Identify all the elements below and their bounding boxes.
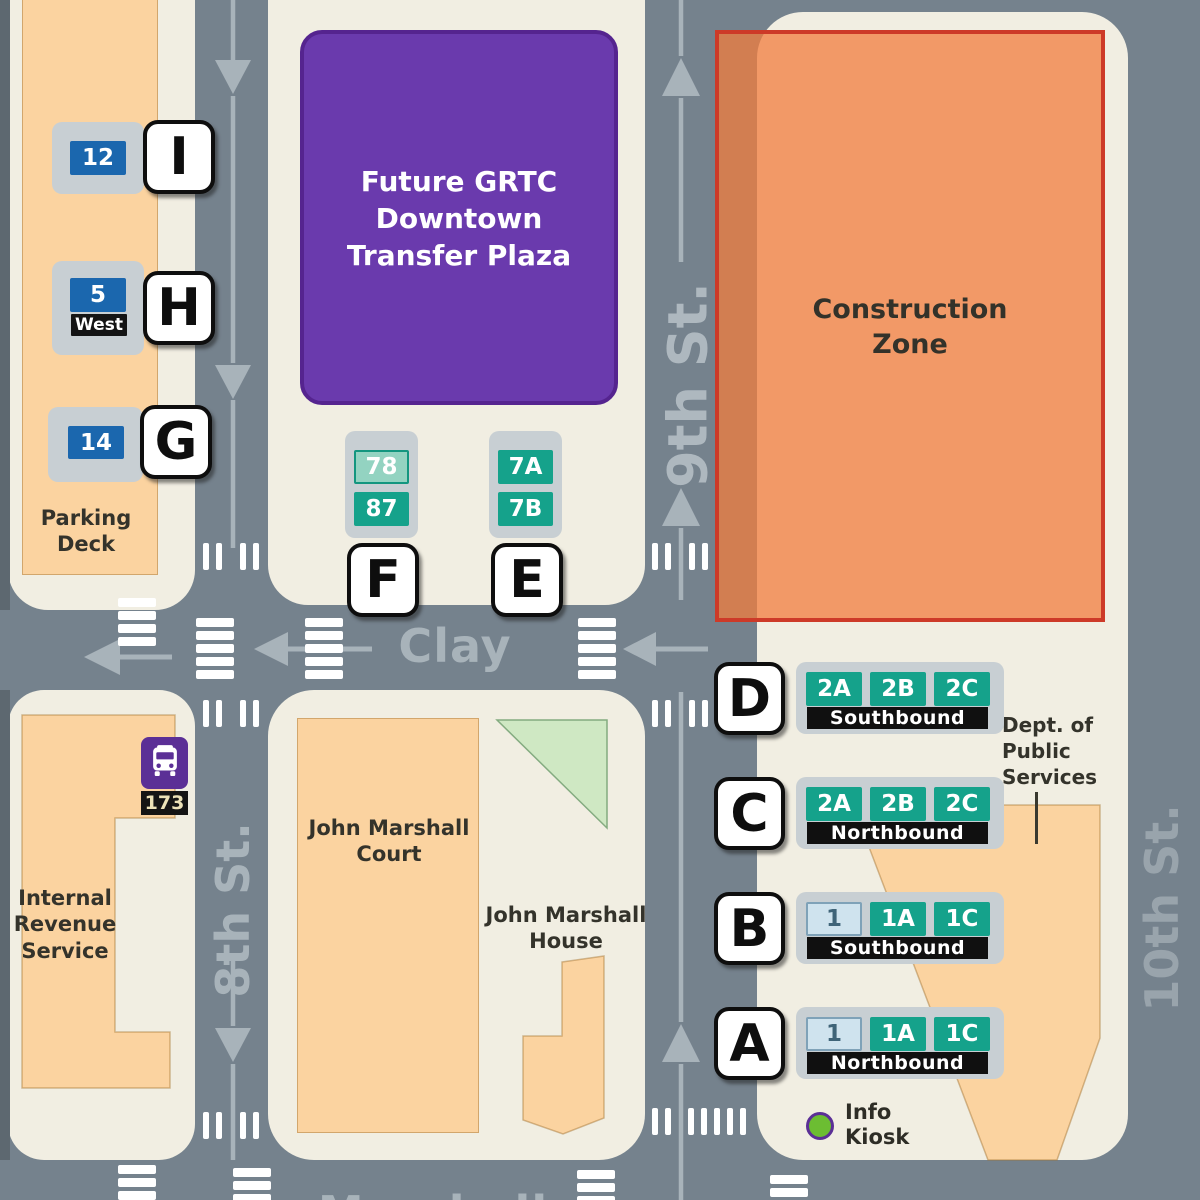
stop-D-direction-banner: Southbound (807, 707, 988, 729)
route-badge-B-1[interactable]: 1 (806, 902, 862, 936)
route-badge-D-2A[interactable]: 2A (806, 672, 862, 706)
stop-B-direction-banner: Southbound (807, 937, 988, 959)
stop-D-marker[interactable]: D (714, 662, 785, 735)
route-badge-C-2C[interactable]: 2C (934, 787, 990, 821)
park-triangle (497, 720, 607, 828)
stop-C-direction-banner: Northbound (807, 822, 988, 844)
bus-stop-sign[interactable] (141, 737, 188, 789)
bus-icon (146, 742, 184, 784)
transit-map: Future GRTC Downtown Transfer Plaza Cons… (0, 0, 1200, 1200)
route-badge-14[interactable]: 14 (68, 426, 124, 459)
route-badge-D-2B[interactable]: 2B (870, 672, 926, 706)
route-badge-B-1C[interactable]: 1C (934, 902, 990, 936)
route-badge-A-1A[interactable]: 1A (870, 1017, 926, 1051)
stop-H-marker[interactable]: H (143, 271, 215, 345)
street-label-9th: 9th St. (657, 282, 720, 488)
route-badge-5[interactable]: 5 (70, 278, 126, 312)
stop-E-marker[interactable]: E (491, 543, 563, 617)
stop-F-marker[interactable]: F (347, 543, 419, 617)
stop-C-marker[interactable]: C (714, 777, 785, 850)
route-badge-87[interactable]: 87 (354, 492, 409, 526)
future-transfer-plaza: Future GRTC Downtown Transfer Plaza (300, 30, 618, 405)
dept-public-services-pointer (1035, 792, 1038, 844)
stop-G-marker[interactable]: G (140, 405, 212, 479)
route-badge-12[interactable]: 12 (70, 141, 126, 175)
route-badge-C-2A[interactable]: 2A (806, 787, 862, 821)
route-badge-78[interactable]: 78 (354, 450, 409, 484)
irs-label: Internal Revenue Service (0, 885, 130, 964)
street-label-marshall: Marshall (318, 1186, 548, 1200)
route-badge-C-2B[interactable]: 2B (870, 787, 926, 821)
john-marshall-house-label: John Marshall House (477, 902, 655, 955)
route-badge-B-1A[interactable]: 1A (870, 902, 926, 936)
route-badge-5-west[interactable]: West (71, 314, 127, 336)
street-label-10th: 10th St. (1135, 804, 1189, 1011)
dept-public-services-label: Dept. of Public Services (1002, 712, 1114, 790)
route-badge-A-1C[interactable]: 1C (934, 1017, 990, 1051)
parking-deck-label: Parking Deck (21, 505, 151, 558)
bus-stop-route-plate: 173 (141, 791, 188, 815)
stop-I-marker[interactable]: I (143, 120, 215, 194)
stop-A-direction-banner: Northbound (807, 1052, 988, 1074)
street-label-8th: 8th St. (206, 822, 260, 997)
route-badge-A-1[interactable]: 1 (806, 1017, 862, 1051)
street-label-clay: Clay (398, 619, 511, 673)
construction-zone: Construction Zone (715, 30, 1105, 622)
info-kiosk-label: Info Kiosk (845, 1100, 909, 1150)
future-transfer-plaza-label: Future GRTC Downtown Transfer Plaza (304, 164, 614, 275)
route-badge-7B[interactable]: 7B (498, 492, 553, 526)
construction-zone-label: Construction Zone (719, 292, 1101, 362)
stop-B-marker[interactable]: B (714, 892, 785, 965)
building-john-marshall-house-shape (523, 956, 604, 1134)
route-badge-D-2C[interactable]: 2C (934, 672, 990, 706)
stop-A-marker[interactable]: A (714, 1007, 785, 1080)
john-marshall-court-label: John Marshall Court (300, 815, 478, 868)
route-badge-7A[interactable]: 7A (498, 450, 553, 484)
info-kiosk-marker[interactable] (806, 1112, 834, 1140)
